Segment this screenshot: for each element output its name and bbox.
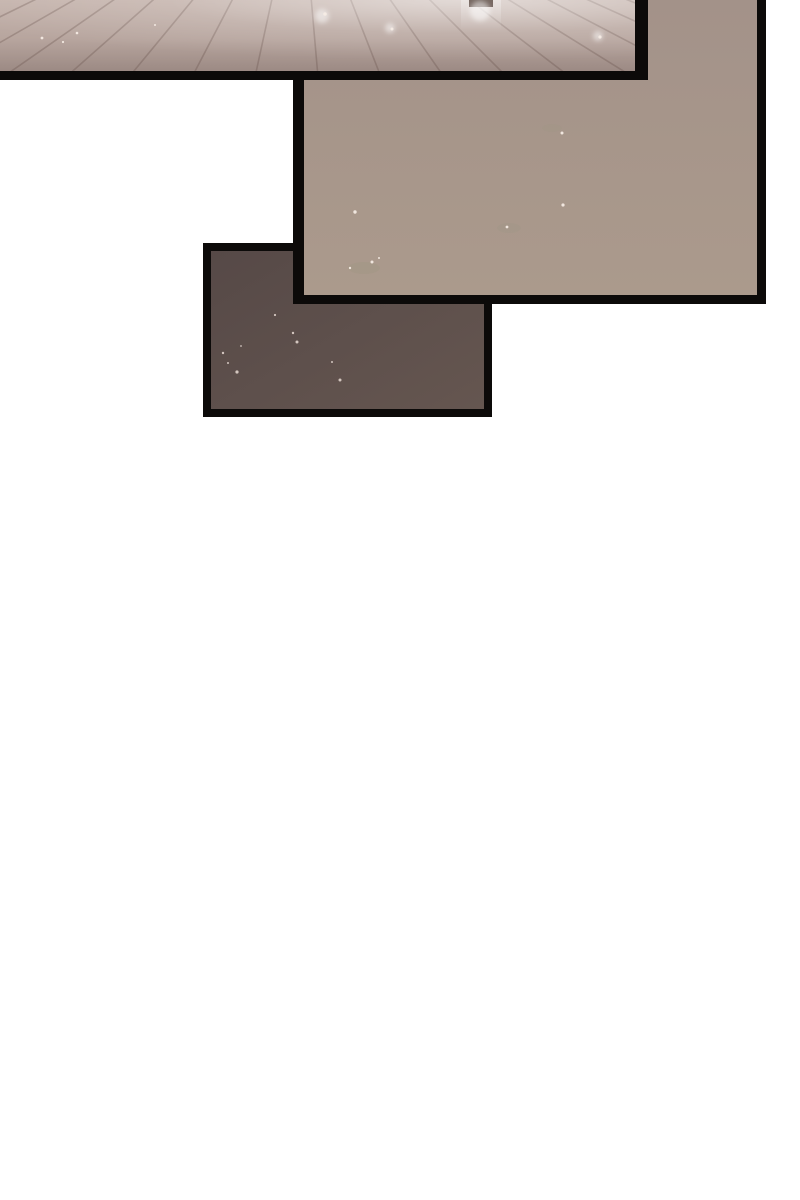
floor-panel-art <box>0 0 635 71</box>
panel-plank-floor <box>0 0 648 80</box>
moss-smudge <box>497 223 521 233</box>
moss-smudge <box>348 262 380 274</box>
comic-page <box>0 0 800 1200</box>
moss-smudge <box>542 124 562 132</box>
